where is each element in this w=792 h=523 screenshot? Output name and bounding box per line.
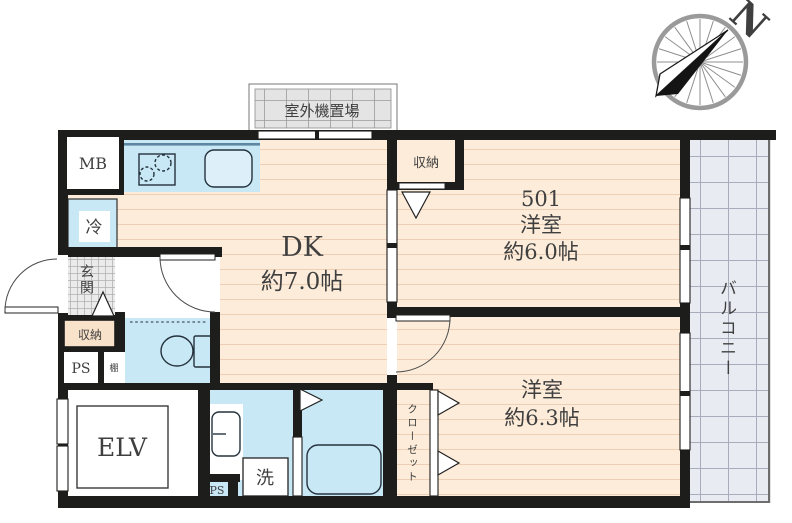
- balcony-label: バルコニー: [716, 279, 736, 379]
- washer-label: 洗: [256, 468, 274, 489]
- dk-name: DK: [281, 232, 324, 263]
- balcony: バルコニー: [690, 140, 770, 503]
- closet-label: クローゼット: [406, 404, 418, 485]
- shelf-label: 棚: [109, 362, 118, 374]
- floor-plan-page: N 室外機置場 バルコニー 冷 玄関: [0, 0, 792, 523]
- room-2-type: 洋室: [521, 378, 563, 402]
- hall-door-leaf: [160, 254, 215, 260]
- floor-plan: N 室外機置場 バルコニー 冷 玄関: [0, 0, 792, 523]
- room-2-size: 約6.3帖: [504, 406, 579, 430]
- dk-size: 約7.0帖: [261, 269, 344, 295]
- entrance-label: 玄関: [78, 263, 94, 296]
- compass-icon: N: [654, 0, 777, 108]
- kitchen: [123, 140, 260, 192]
- sink-icon: [205, 150, 252, 187]
- washbasin-counter: [210, 404, 243, 480]
- room-501-type: 洋室: [520, 213, 562, 237]
- elevator-label: ELV: [97, 433, 148, 462]
- storage-501-label: 収納: [413, 156, 439, 171]
- bathroom: [302, 390, 383, 496]
- outdoor-unit-area: 室外機置場: [249, 84, 397, 132]
- room-501-number: 501: [521, 187, 561, 211]
- fridge-space: 冷: [68, 199, 117, 248]
- toilet-room: [125, 318, 211, 383]
- pipe-space-lower-label: PS: [210, 484, 225, 497]
- fridge-label: 冷: [86, 218, 103, 238]
- meter-box-label: MB: [79, 154, 107, 173]
- pipe-space-upper-label: PS: [71, 361, 90, 377]
- entrance-door-leaf: [5, 307, 58, 313]
- outdoor-unit-label: 室外機置場: [284, 102, 359, 120]
- entrance-door-arc: [5, 259, 57, 311]
- room-501-size: 約6.0帖: [503, 240, 578, 264]
- entrance-storage-label: 収納: [78, 328, 102, 342]
- bedroom-door-leaf: [396, 315, 450, 321]
- toilet-icon: [161, 336, 211, 367]
- storage-501-door: [399, 183, 445, 189]
